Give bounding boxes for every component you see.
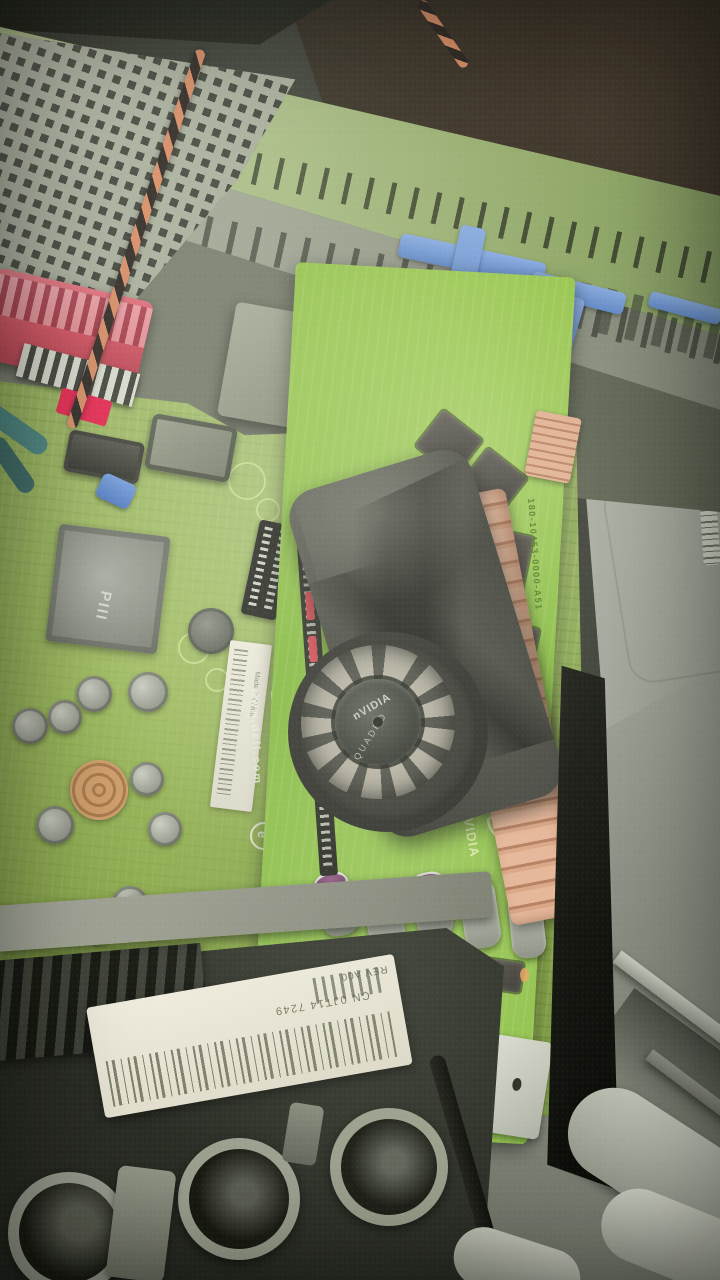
chipset-marking: PIII <box>92 589 115 622</box>
capacitor <box>128 672 168 712</box>
capacitor <box>12 708 48 744</box>
capacitor <box>188 608 234 654</box>
shroud-hole-3 <box>330 1108 448 1226</box>
capacitor <box>36 806 74 844</box>
solder-glint <box>520 968 529 982</box>
pc-case-photo: PIII Made in China www.dell.com DELL e 1… <box>0 0 720 1280</box>
silkscreen-ring-1 <box>228 462 266 500</box>
gpu-bracket-hole <box>511 1077 522 1091</box>
silkscreen-ring-2 <box>256 498 280 522</box>
inductor-coil <box>70 760 128 820</box>
red-mark <box>308 636 318 662</box>
fan-hub-screw <box>373 717 383 727</box>
capacitor <box>148 812 182 846</box>
gpu-fan-hub: nVIDIA QUADRO <box>335 679 421 765</box>
capacitor <box>130 762 164 796</box>
capacitor <box>76 676 112 712</box>
chipset: PIII <box>45 524 171 655</box>
capacitor <box>48 700 82 734</box>
